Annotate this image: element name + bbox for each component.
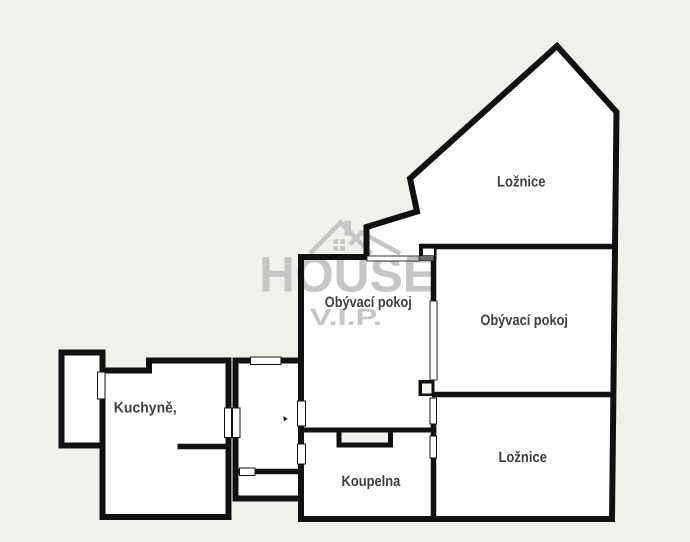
svg-text:Obývací pokoj: Obývací pokoj	[480, 312, 568, 329]
svg-text:Obývací pokoj: Obývací pokoj	[325, 294, 412, 311]
svg-text:Ložnice: Ložnice	[498, 449, 547, 466]
svg-text:Kuchyně,: Kuchyně,	[114, 400, 177, 417]
svg-text:Koupelna: Koupelna	[342, 473, 401, 490]
svg-text:Ložnice: Ložnice	[497, 174, 546, 191]
